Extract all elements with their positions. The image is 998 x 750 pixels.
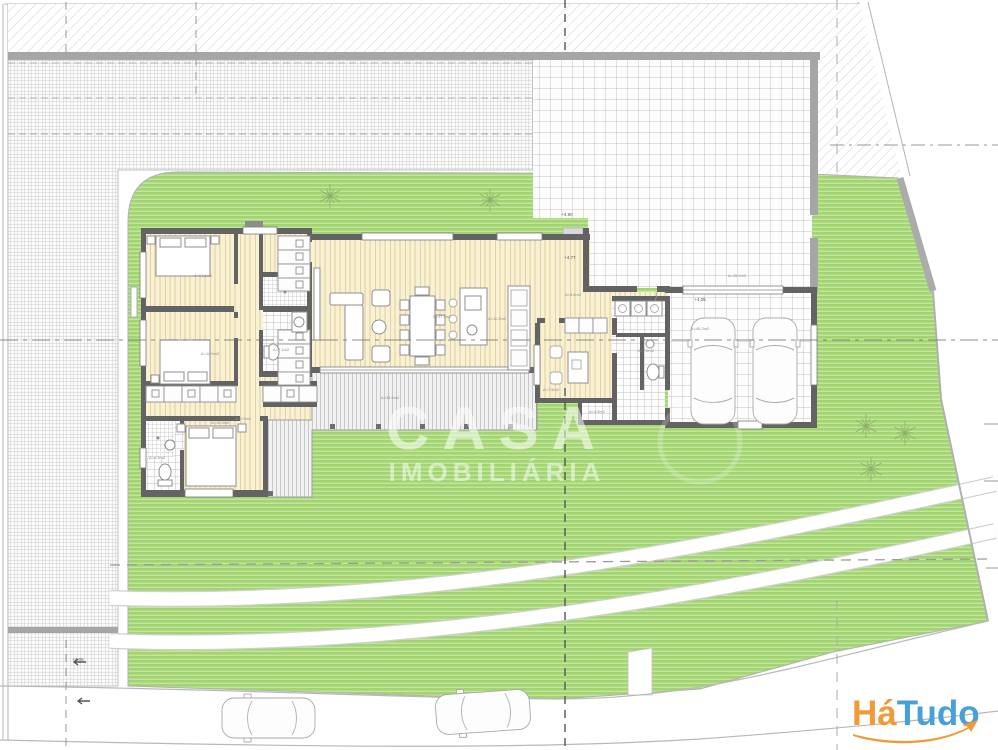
logo-part2: Tudo: [897, 694, 980, 733]
level-mark: +4.05: [694, 297, 706, 302]
hall-closet: [565, 318, 607, 333]
laundry-appliances: [615, 301, 662, 316]
patio-tiles-upper: [533, 60, 812, 218]
bed-3: [177, 424, 246, 486]
floor-plan-page: A=14.5m2A=14.5m2A=7.1m2A=4.3m2A=10.9m2A=…: [0, 0, 998, 750]
wardrobe-bedroom2: [278, 330, 310, 385]
level-mark: +4.05: [72, 657, 84, 662]
room-area-label: A=9.8m2: [565, 292, 582, 297]
level-mark: +4.77: [564, 255, 576, 260]
patio-wall-right: [810, 52, 818, 215]
room-area-label: A=7.5m2: [543, 387, 560, 392]
bed-1: [147, 236, 219, 276]
lawn-notch: [628, 648, 652, 695]
logo-part1: Há: [852, 694, 897, 733]
room-area-label: A=7.1m2: [273, 347, 290, 352]
kitchen-counter: [508, 286, 530, 370]
watermark-line1: CASA: [386, 395, 608, 462]
room-area-label: A=11.3m2: [488, 316, 507, 321]
room-area-label: A=2.6m2: [638, 348, 655, 353]
garage-car-1: [688, 318, 738, 424]
street-car-1: [222, 694, 315, 742]
room-area-label: A=10.9m2: [211, 420, 230, 425]
laundry-floor: [612, 300, 665, 422]
site-plan-drawing: A=14.5m2A=14.5m2A=7.1m2A=4.3m2A=10.9m2A=…: [0, 0, 998, 750]
watermark-line2: IMOBILIÁRIA: [389, 457, 606, 487]
logo-wordmark: HáTudo: [852, 694, 980, 733]
garage-back-door: [738, 421, 762, 429]
patio-wall-right-stub: [810, 238, 818, 292]
room-area-label: A=40.2m2: [691, 326, 710, 331]
room-area-label: A=47.5m2: [433, 314, 452, 319]
bathroom2-shower: [146, 421, 174, 457]
tv-unit: [314, 268, 320, 340]
closet-row: [146, 386, 317, 402]
room-area-label: A=14.5m2: [194, 273, 213, 278]
room-area-label: A=45.6m2: [728, 273, 747, 278]
agency-logo: HáTudo: [852, 694, 980, 743]
level-mark: +4.90: [561, 212, 573, 217]
driveway-arrow-2: [78, 698, 90, 704]
garage-car-2: [750, 318, 800, 424]
room-area-label: A=14.5m2: [201, 351, 220, 356]
room-area-label: A=4.3m2: [149, 455, 166, 460]
ac-unit: [131, 287, 137, 317]
patio-wall-top: [525, 52, 820, 60]
room-area-label: A=0.5m2: [235, 416, 252, 421]
wardrobe-bedroom1: [278, 236, 310, 291]
patio-tiles-court: [588, 218, 812, 288]
garage-window: [811, 325, 817, 385]
bed-2: [151, 340, 210, 384]
coffee-table: [372, 320, 386, 334]
driveway-wall: [8, 627, 118, 633]
